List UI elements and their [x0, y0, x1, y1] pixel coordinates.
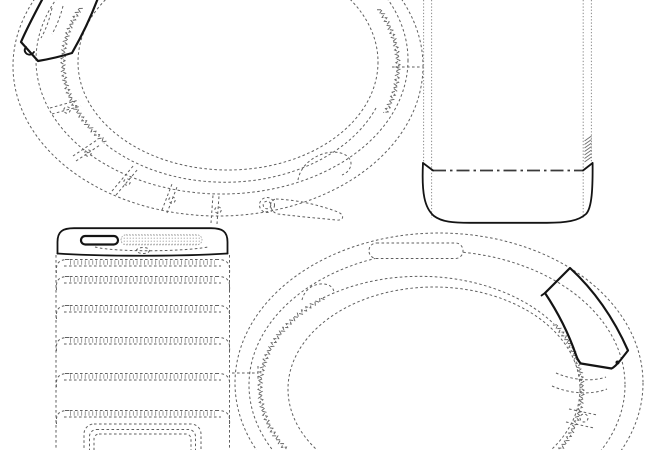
- band-teeth-right: [377, 10, 400, 113]
- clasp-segment: [21, 0, 98, 61]
- band-capsule-slot: [369, 243, 463, 259]
- band-outline-dashed: [235, 233, 643, 450]
- patent-sheet: [0, 0, 650, 450]
- watch-screen-dotted: [84, 424, 201, 450]
- link-separators: [50, 100, 219, 224]
- band-teeth-left: [258, 298, 325, 450]
- clasp-segment: [542, 268, 629, 369]
- link-screw-hole: [580, 414, 588, 422]
- band-links: [56, 255, 230, 450]
- fig-band-ring-lower-right: [232, 233, 643, 450]
- fig-front-elevation-lower-left: [56, 228, 230, 450]
- edge-hatching: [585, 136, 592, 162]
- cap-button: [137, 248, 150, 254]
- fig-band-ring-upper-left: [13, 0, 423, 224]
- clasp-loop-bump: [302, 284, 334, 300]
- cap-lower-arc: [95, 247, 208, 251]
- lower-cap-solid: [423, 163, 593, 223]
- cap-pill-window: [81, 236, 118, 245]
- clasp-loop-bump: [298, 152, 351, 180]
- band-outline-dashed: [13, 0, 423, 216]
- top-cap: [58, 228, 228, 256]
- patent-drawing-canvas: [0, 0, 650, 450]
- band-teeth-right: [553, 325, 584, 450]
- clasp-catch-dot: [616, 361, 620, 365]
- fig-side-elevation-upper-right: [423, 0, 593, 223]
- clasp-tick: [542, 293, 546, 296]
- body-side-edges-dotted: [424, 0, 592, 218]
- band-seam-tick: [232, 366, 258, 380]
- cap-grille-stipple: [121, 235, 202, 245]
- link-screw-holes: [64, 107, 221, 213]
- clasp-pin: [260, 198, 343, 221]
